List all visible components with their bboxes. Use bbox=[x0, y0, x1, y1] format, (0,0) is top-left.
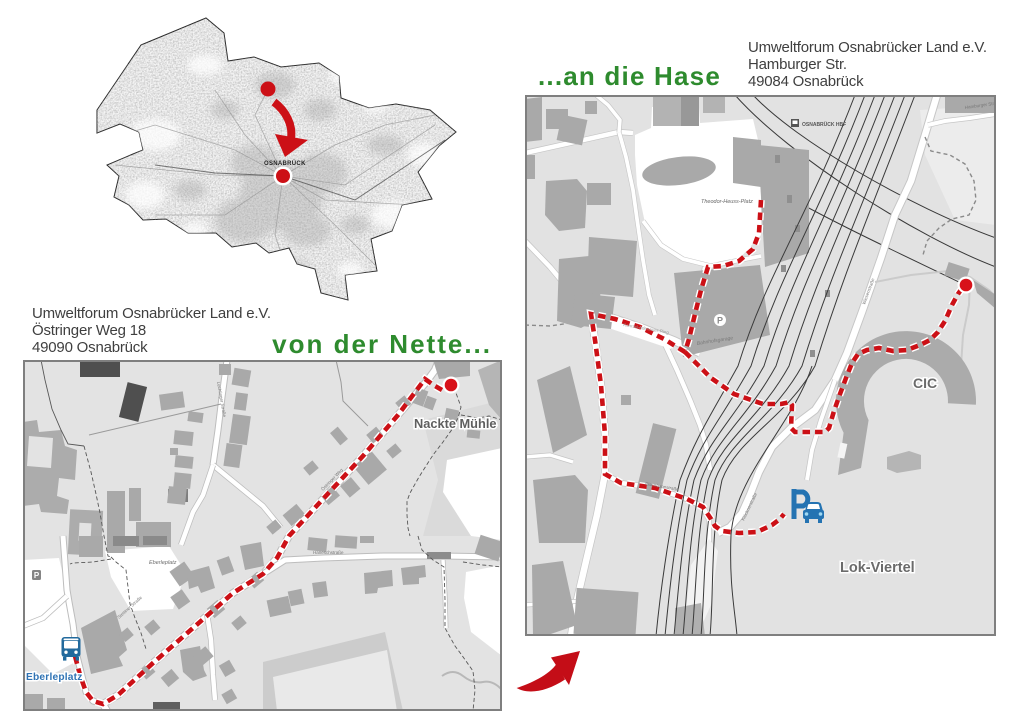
svg-text:OSNABRÜCK: OSNABRÜCK bbox=[264, 160, 306, 167]
svg-text:OSNABRÜCK HBF: OSNABRÜCK HBF bbox=[802, 121, 846, 128]
svg-text:Eberleplatz: Eberleplatz bbox=[26, 672, 83, 683]
svg-text:Theodor-Heuss-Platz: Theodor-Heuss-Platz bbox=[701, 199, 753, 205]
svg-text:Eberleplatz: Eberleplatz bbox=[149, 560, 177, 566]
svg-text:P: P bbox=[34, 571, 40, 580]
svg-text:Haneschstraße: Haneschstraße bbox=[313, 550, 344, 555]
svg-text:Nackte Mühle: Nackte Mühle bbox=[414, 416, 497, 431]
svg-text:P: P bbox=[717, 316, 723, 326]
svg-text:Lok-Viertel: Lok-Viertel bbox=[840, 560, 915, 576]
svg-text:CIC: CIC bbox=[913, 375, 937, 391]
